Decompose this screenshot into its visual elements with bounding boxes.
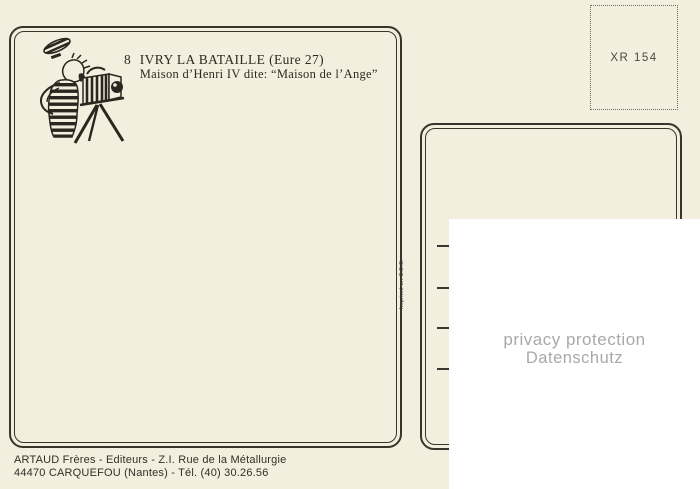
publisher-line-2: 44470 CARQUEFOU (Nantes) - Tél. (40) 30.…	[14, 467, 286, 480]
caption: 8 IVRY LA BATAILLE (Eure 27) Maison d’He…	[124, 52, 378, 81]
postcard-back-scan: 8 IVRY LA BATAILLE (Eure 27) Maison d’He…	[0, 0, 700, 489]
stamp-box: XR 154	[590, 5, 678, 110]
imprint-vertical-text: Imprimé en C.E.E.	[399, 253, 419, 315]
publisher-line-1: ARTAUD Frères - Editeurs - Z.I. Rue de l…	[14, 454, 286, 467]
photographer-illustration-icon	[27, 36, 127, 148]
card-title: IVRY LA BATAILLE (Eure 27)	[140, 52, 378, 67]
stamp-code-label: XR 154	[610, 52, 657, 64]
card-number: 8	[124, 52, 131, 81]
privacy-line-en: privacy protection	[449, 331, 700, 349]
privacy-line-de: Datenschutz	[449, 349, 700, 367]
privacy-overlay: privacy protection Datenschutz	[449, 219, 700, 489]
publisher-imprint: ARTAUD Frères - Editeurs - Z.I. Rue de l…	[14, 454, 286, 479]
card-subtitle: Maison d’Henri IV dite: “Maison de l’Ang…	[140, 67, 378, 81]
privacy-text: privacy protection Datenschutz	[449, 331, 700, 367]
